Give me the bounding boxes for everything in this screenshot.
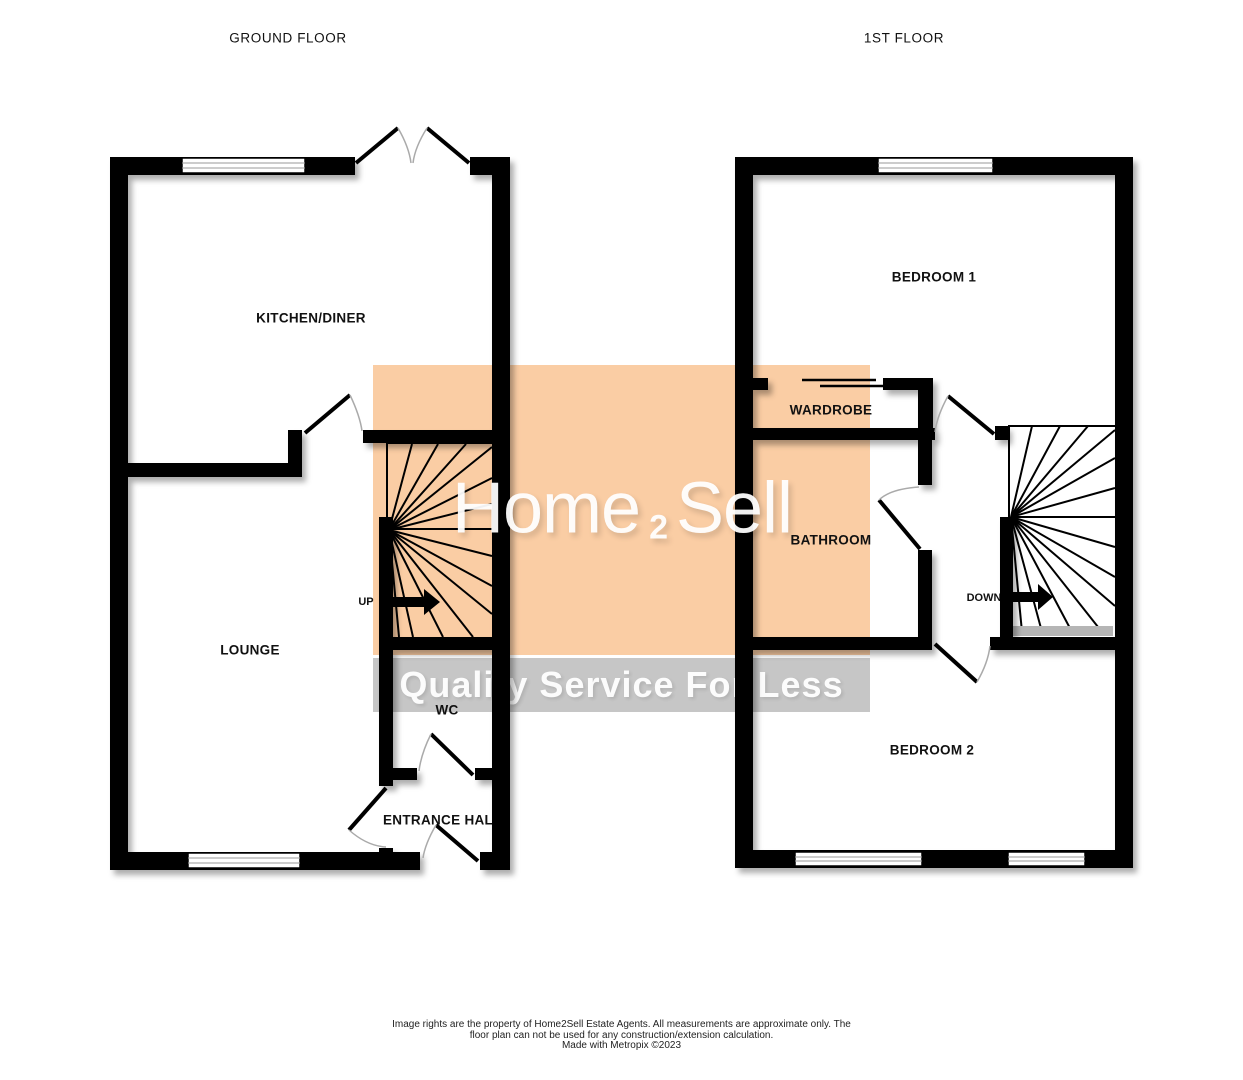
first-floor-walls xyxy=(735,157,1133,868)
door-swing-arc xyxy=(419,734,431,771)
wc-door xyxy=(419,734,473,775)
front-door xyxy=(423,825,478,861)
door-swing-arc xyxy=(423,825,436,858)
first-floor-windows xyxy=(795,158,1085,866)
watermark-brand: Home2Sell xyxy=(452,468,792,550)
bedroom2-door xyxy=(935,644,990,682)
door-swing-arc xyxy=(935,396,948,432)
brand-word-sell: Sell xyxy=(676,469,792,549)
bedroom1-door xyxy=(935,396,994,434)
floor-plan-page: Quality Service For Less GROUND FLOOR 1S… xyxy=(0,0,1243,1080)
window xyxy=(795,852,922,866)
brand-word-home: Home xyxy=(452,469,640,549)
door-swing-arc xyxy=(350,395,362,431)
french-doors xyxy=(356,128,469,163)
kitchen-door xyxy=(305,395,362,433)
lounge-door xyxy=(349,788,386,847)
window xyxy=(188,853,300,868)
sliding-door xyxy=(802,380,894,386)
ground-floor-plan xyxy=(110,128,510,870)
ground-floor-walls xyxy=(110,157,510,870)
door-swing-arc xyxy=(349,830,386,847)
first-floor-plan xyxy=(735,157,1133,868)
ground-floor-windows xyxy=(182,158,305,868)
window xyxy=(182,158,305,173)
door-swing-arc xyxy=(977,646,990,682)
brand-digit-2: 2 xyxy=(649,509,667,547)
door-swing-arc xyxy=(879,487,919,500)
door-swing-arc xyxy=(413,128,427,163)
stair-landing-step xyxy=(1013,626,1113,636)
window xyxy=(1008,852,1085,866)
window xyxy=(878,158,993,173)
door-swing-arc xyxy=(398,128,411,163)
bathroom-door xyxy=(879,487,920,549)
